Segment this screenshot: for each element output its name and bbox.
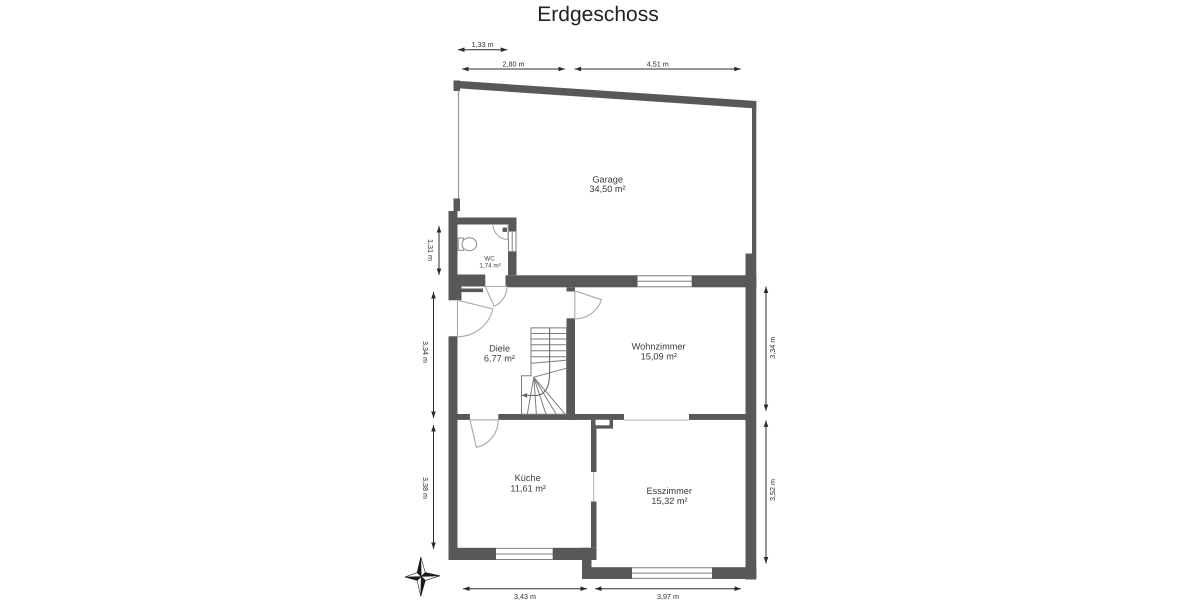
svg-text:15,32 m²: 15,32 m² — [651, 496, 687, 506]
svg-text:4,51 m: 4,51 m — [647, 59, 669, 68]
svg-text:3,97 m: 3,97 m — [657, 592, 679, 600]
svg-text:Esszimmer: Esszimmer — [646, 486, 691, 496]
svg-text:1,31 m: 1,31 m — [426, 239, 435, 261]
svg-text:3,43 m: 3,43 m — [514, 592, 536, 600]
svg-text:34,50 m²: 34,50 m² — [589, 184, 625, 194]
svg-text:WC: WC — [484, 255, 495, 262]
svg-text:3,34 m: 3,34 m — [421, 341, 430, 363]
svg-text:Wohnzimmer: Wohnzimmer — [632, 341, 686, 351]
svg-text:2,80 m: 2,80 m — [503, 59, 525, 68]
svg-text:11,61 m²: 11,61 m² — [510, 483, 546, 493]
svg-text:1,74 m²: 1,74 m² — [479, 262, 500, 269]
svg-text:3,52 m: 3,52 m — [768, 479, 777, 501]
svg-text:Diele: Diele — [489, 344, 510, 354]
svg-text:Garage: Garage — [592, 174, 623, 184]
svg-text:6,77 m²: 6,77 m² — [484, 354, 515, 364]
svg-text:1,33 m: 1,33 m — [472, 40, 494, 49]
svg-text:Küche: Küche — [515, 473, 541, 483]
svg-text:3,34 m: 3,34 m — [768, 337, 777, 359]
svg-text:3,38 m: 3,38 m — [421, 477, 430, 499]
svg-text:15,09 m²: 15,09 m² — [641, 351, 677, 361]
svg-text:Erdgeschoss: Erdgeschoss — [537, 3, 658, 26]
